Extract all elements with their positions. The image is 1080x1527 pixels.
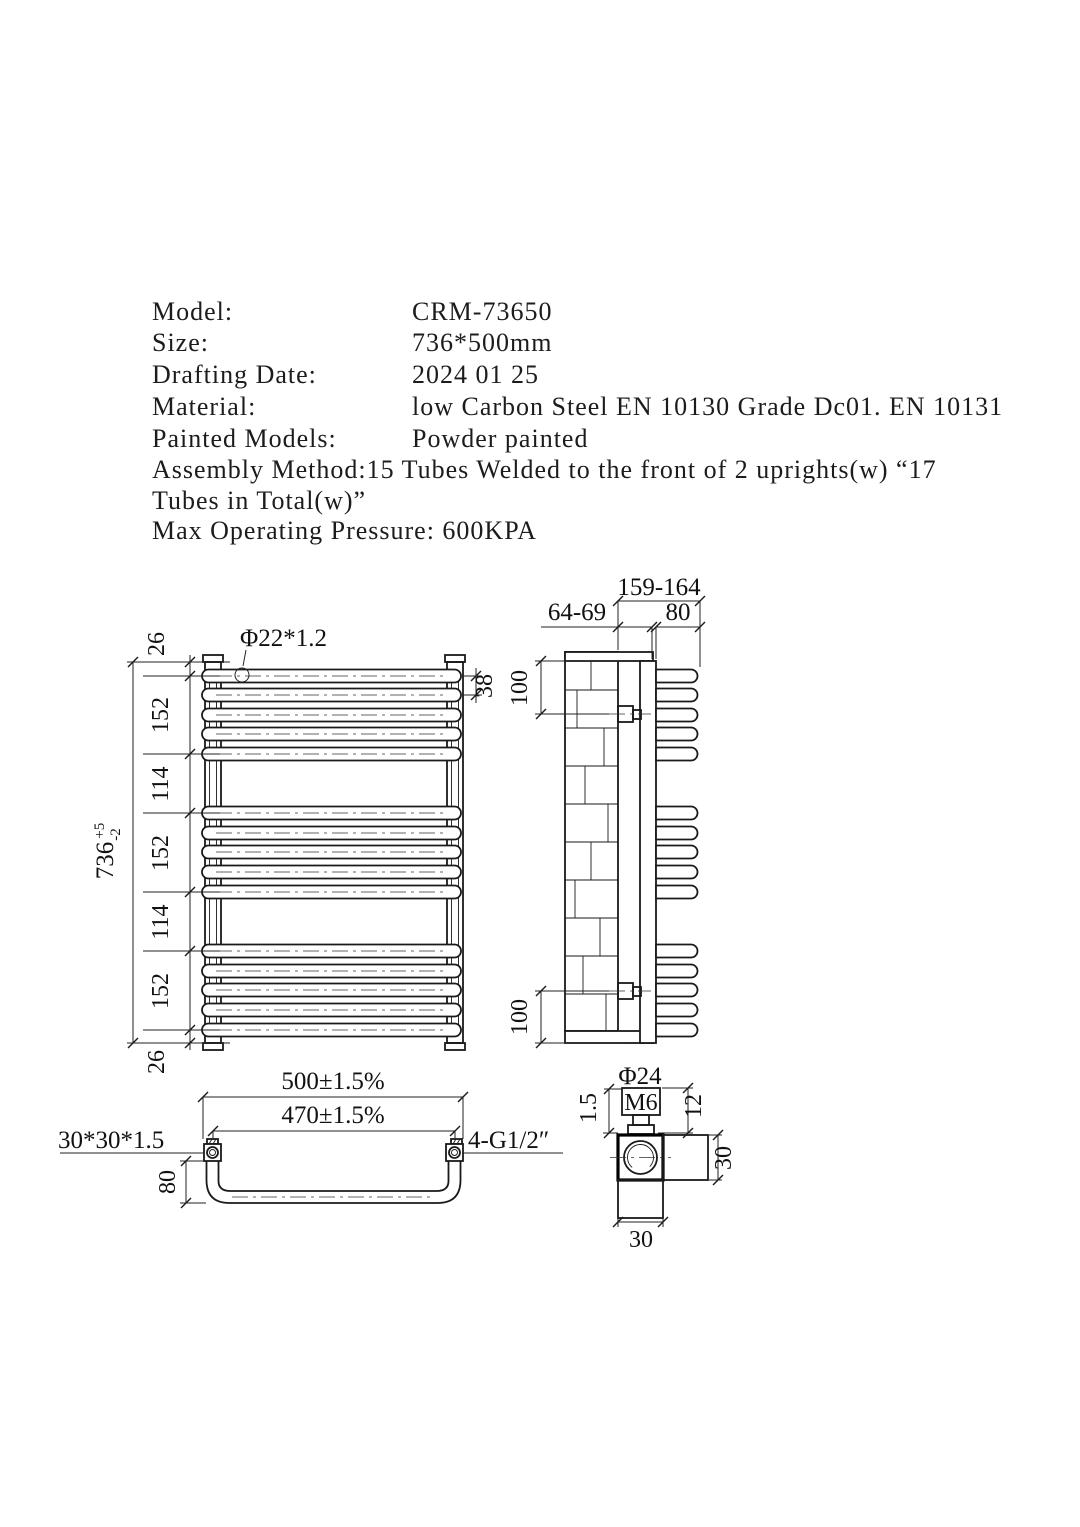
heating-tube <box>202 965 461 978</box>
tube-loop <box>656 846 698 859</box>
callout-connections: 4-G1/2″ <box>463 1127 563 1154</box>
title-row-label: Painted Models: <box>152 424 337 453</box>
dim-38-label: 38 <box>472 674 498 698</box>
title-row-label: Material: <box>152 392 256 421</box>
tube-loop <box>656 984 698 997</box>
dim-80-side-label: 80 <box>666 599 691 626</box>
tube-loop <box>656 728 698 741</box>
washer-plate <box>628 1125 654 1134</box>
dim-section-width: 30 <box>613 1217 668 1253</box>
dim-section-depth: 30 <box>709 1130 737 1185</box>
upright-profile <box>640 661 656 1043</box>
side-view: 159-164 64-69 80 100 <box>507 574 705 1048</box>
dim-114-b: 114 <box>148 904 174 939</box>
dim-30-right-label: 30 <box>711 1146 737 1170</box>
dim-bracket-top: 100 <box>507 656 618 719</box>
dim-phi24-label: Φ24 <box>618 1063 662 1090</box>
title-row-value: 2024 01 25 <box>412 360 539 389</box>
top-mount-plate <box>565 652 653 661</box>
dim-152-c: 152 <box>148 973 174 1009</box>
technical-drawing: Model: CRM-73650 Size: 736*500mm Draftin… <box>0 0 1080 1527</box>
dim-114-a: 114 <box>148 766 174 801</box>
dim-loop-depth-plan: 80 <box>155 1156 206 1208</box>
dim-152-a: 152 <box>148 697 174 733</box>
wall-section <box>565 652 618 1031</box>
screw-shank <box>633 1115 649 1125</box>
fitting-right <box>446 1139 463 1161</box>
tube-loop <box>656 965 698 978</box>
dim-470-label: 470±1.5% <box>281 1102 384 1129</box>
title-row-value: low Carbon Steel EN 10130 Grade Dc01. EN… <box>412 392 1003 421</box>
callout-upright-spec: 30*30*1.5 <box>58 1127 204 1154</box>
dim-100-top-label: 100 <box>507 670 533 706</box>
heating-tube <box>202 1004 461 1017</box>
heating-tube <box>202 807 461 820</box>
dim-wall-clearance: 64-69 <box>541 599 657 659</box>
tube-spec-label: Φ22*1.2 <box>240 625 327 652</box>
dim-loop-depth-side: 80 <box>651 599 705 659</box>
tube-loop <box>656 886 698 899</box>
heating-tube <box>202 1024 461 1037</box>
dim-wall-thickness: 1.5 <box>576 1084 622 1138</box>
dim-26-bottom: 26 <box>144 1050 170 1074</box>
title-row-value: CRM-73650 <box>412 297 552 326</box>
dim-overall-height: 736+5-2 <box>92 823 124 879</box>
tube-loop <box>656 827 698 840</box>
dim-30-bottom-label: 30 <box>629 1227 653 1253</box>
fitting-left <box>204 1139 221 1161</box>
title-row-label: Model: <box>152 297 233 326</box>
heating-tube <box>202 846 461 859</box>
heating-tube <box>202 886 461 899</box>
title-block: Model: CRM-73650 Size: 736*500mm Draftin… <box>152 297 1003 545</box>
dim-152-b: 152 <box>148 835 174 871</box>
tube-loop <box>656 670 698 683</box>
max-pressure-line: Max Operating Pressure: 600KPA <box>152 516 537 545</box>
label-30x30x1-5: 30*30*1.5 <box>58 1127 164 1154</box>
plan-view: 500±1.5% 470±1.5% 30*30*1.5 4-G1/2″ 80 <box>58 1068 563 1208</box>
detail-view: Φ24 M6 1.5 12 30 <box>576 1063 737 1253</box>
tube-loop <box>656 689 698 702</box>
dim-80-plan-label: 80 <box>155 1170 181 1194</box>
dim-centres-width: 470±1.5% <box>208 1102 460 1139</box>
tube-loop <box>656 807 698 820</box>
dim-m6-label: M6 <box>624 1090 657 1116</box>
title-row-label: Drafting Date: <box>152 360 317 389</box>
heating-tube <box>202 748 461 761</box>
heating-tube <box>202 689 461 702</box>
tube-loop <box>656 945 698 958</box>
assembly-method-line1: Assembly Method:15 Tubes Welded to the f… <box>152 455 937 484</box>
heating-tube <box>202 728 461 741</box>
tube-loop <box>656 709 698 722</box>
dim-cap-depth: 12 <box>658 1083 707 1138</box>
dim-tube-pitch: 38 <box>462 668 498 703</box>
drawing-sheet: Model: CRM-73650 Size: 736*500mm Draftin… <box>0 0 1080 1527</box>
dim-100-bottom-label: 100 <box>507 999 533 1035</box>
tube-loop <box>656 1004 698 1017</box>
title-row-value: 736*500mm <box>412 328 552 357</box>
section-bottom-box <box>618 1180 663 1218</box>
heating-tube <box>202 984 461 997</box>
dim-64-69-label: 64-69 <box>548 599 606 626</box>
u-tube-inner <box>219 1161 449 1191</box>
label-4-g12: 4-G1/2″ <box>468 1127 549 1154</box>
heating-tube <box>202 827 461 840</box>
tube-loop <box>656 1024 698 1037</box>
heating-tube <box>202 670 461 683</box>
dim-159-164-label: 159-164 <box>617 574 701 601</box>
tube-loop <box>656 748 698 761</box>
dim-26-top: 26 <box>144 632 170 656</box>
dim-12-label: 12 <box>681 1094 707 1118</box>
assembly-method-line2: Tubes in Total(w)” <box>152 486 366 515</box>
heating-tube <box>202 866 461 879</box>
front-view: Φ22*1.2 38 26 152 <box>92 625 498 1074</box>
dim-1-5-label: 1.5 <box>576 1093 602 1123</box>
heating-tube <box>202 709 461 722</box>
dim-500-label: 500±1.5% <box>281 1068 384 1095</box>
heating-tube <box>202 945 461 958</box>
title-row-value: Powder painted <box>412 424 588 453</box>
tube-loop <box>656 866 698 879</box>
title-row-label: Size: <box>152 328 209 357</box>
